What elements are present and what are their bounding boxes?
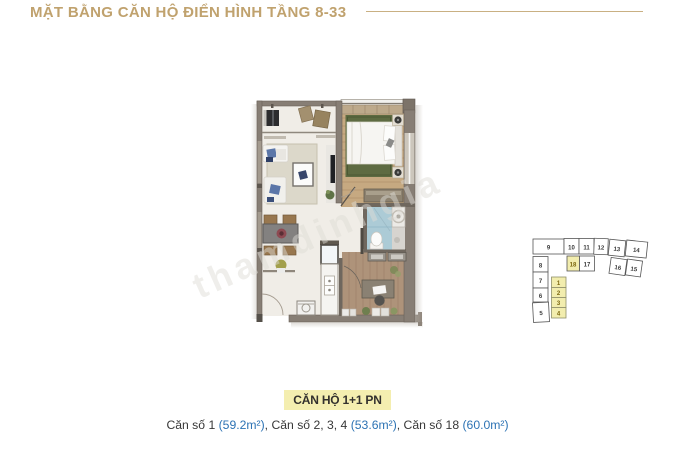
svg-text:12: 12 <box>597 245 605 251</box>
svg-text:11: 11 <box>583 246 590 252</box>
svg-text:10: 10 <box>568 246 575 252</box>
svg-text:14: 14 <box>633 248 641 255</box>
svg-text:18: 18 <box>570 263 577 269</box>
svg-text:17: 17 <box>584 263 591 269</box>
svg-text:13: 13 <box>613 247 621 254</box>
